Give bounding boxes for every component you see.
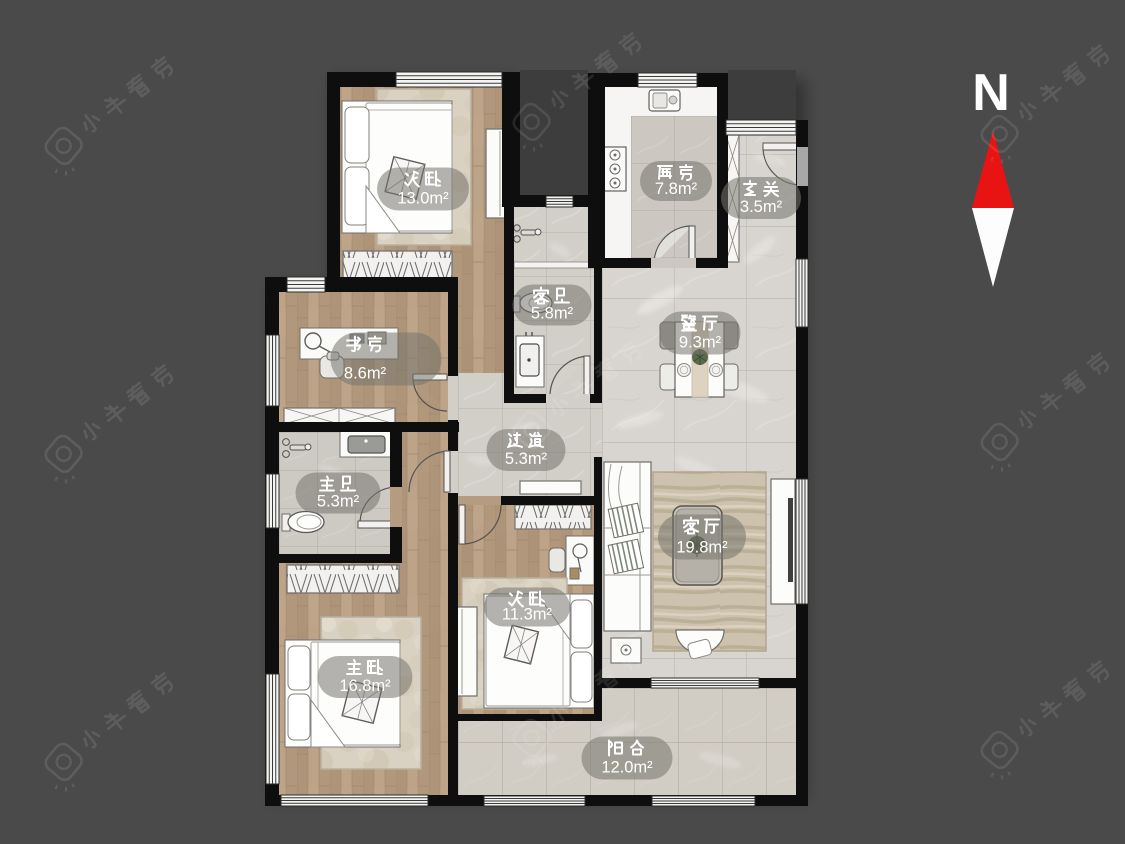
svg-text:5.3m²: 5.3m²: [317, 493, 360, 511]
svg-text:N: N: [972, 64, 1010, 122]
svg-text:13.0m²: 13.0m²: [397, 190, 449, 208]
svg-text:7.8m²: 7.8m²: [655, 180, 698, 198]
svg-text:11.3m²: 11.3m²: [502, 606, 553, 624]
svg-text:19.8m²: 19.8m²: [676, 539, 728, 557]
svg-text:3.5m²: 3.5m²: [740, 198, 783, 216]
svg-text:8.6m²: 8.6m²: [344, 365, 387, 383]
svg-text:16.8m²: 16.8m²: [339, 677, 391, 695]
svg-text:9.3m²: 9.3m²: [679, 334, 722, 352]
svg-text:12.0m²: 12.0m²: [601, 759, 653, 777]
svg-text:5.8m²: 5.8m²: [531, 305, 574, 323]
